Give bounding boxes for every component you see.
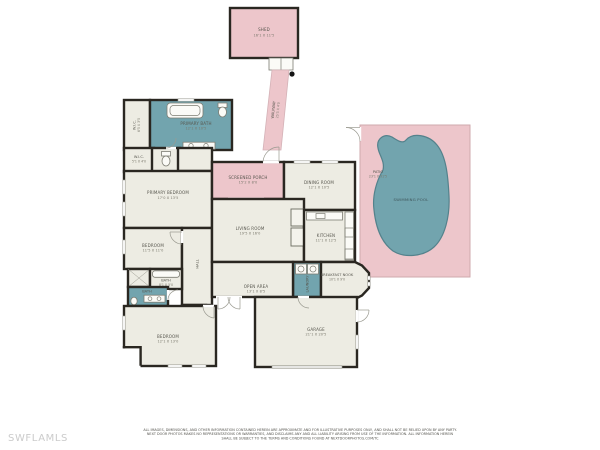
vanity-icon <box>144 295 165 302</box>
open-area-name-label: OPEN AREA <box>244 284 269 289</box>
breakfast-nook-dims-label: 10'1 X 9'0 <box>329 278 345 282</box>
bedroom-2-name-label: BEDROOM <box>142 243 164 248</box>
floor-plan-page: SHED 16'1 X 11'5 WALKWAY 25'5 X 4'0 PATI… <box>0 0 600 450</box>
closet <box>291 228 304 246</box>
room-primary-bath: PRIMARY BATH 12'1 X 10'5 <box>150 100 232 150</box>
primary-bedroom-dims-label: 17'0 X 13'5 <box>157 196 178 200</box>
room-wic-small: W.I.C. 5'1 X 4'0 <box>124 148 154 172</box>
pool-deck: PATIO 23'1 X 31'5 SWIMMING POOL <box>346 125 470 277</box>
open-area-dims-label: 13'1 X 8'5 <box>247 290 266 294</box>
door-gap <box>356 310 359 322</box>
primary-bath-name-label: PRIMARY BATH <box>180 121 211 126</box>
bedroom-2-dims-label: 11'5 X 11'0 <box>142 249 163 253</box>
washer-icon <box>296 264 307 274</box>
room-bath-3: BATH <box>128 287 168 306</box>
wic-small-name-label: W.I.C. <box>134 155 144 159</box>
dining-name-label: DINING ROOM <box>304 180 334 185</box>
room-water-closet <box>152 148 180 172</box>
shed-dims-label: 16'1 X 11'5 <box>253 34 274 38</box>
walkway: WALKWAY 25'5 X 4'0 <box>263 70 289 150</box>
bedroom-3-notch <box>121 348 141 368</box>
window <box>123 202 125 216</box>
swimming-pool-shape <box>374 135 450 255</box>
room-linen-closet <box>128 269 150 287</box>
window <box>168 365 182 367</box>
hall-top <box>178 148 212 171</box>
room-hall: HALL <box>182 228 212 305</box>
window <box>322 161 338 163</box>
primary-bath-dims-label: 12'1 X 10'5 <box>185 127 206 131</box>
bath-3-name-label: BATH <box>142 290 152 294</box>
window <box>123 180 125 194</box>
window <box>294 161 310 163</box>
window <box>192 365 206 367</box>
floor-plan-drawing: SHED 16'1 X 11'5 WALKWAY 25'5 X 4'0 PATI… <box>0 0 600 450</box>
laundry-name-label: LAUNDRY <box>305 275 309 293</box>
door-gap <box>298 296 309 299</box>
wic-small-dims-label: 5'1 X 4'0 <box>132 160 146 164</box>
wic-primary-dims-label: 6'5 X 3'5 <box>137 118 141 132</box>
disclaimer-line-3: SHALL BE SUBJECT TO THE TERMS AND CONDIT… <box>221 436 379 440</box>
room-wic-primary: W.I.C. 6'5 X 3'5 <box>124 100 150 150</box>
toilet-bowl-icon <box>162 156 170 166</box>
dining-dims-label: 12'1 X 10'5 <box>308 186 329 190</box>
bedroom-3-name-label: BEDROOM <box>157 334 179 339</box>
patio-dims-label: 23'1 X 31'5 <box>369 175 387 179</box>
wic-primary-label: W.I.C. 6'5 X 3'5 <box>133 118 141 132</box>
kitchen-counter <box>345 212 354 260</box>
bedroom-3-dims-label: 12'1 X 13'0 <box>157 340 178 344</box>
shed: SHED 16'1 X 11'5 <box>230 8 298 77</box>
room-breakfast-nook: BREAKFAST NOOK 10'1 X 9'0 <box>321 262 370 299</box>
bay-window <box>368 276 371 280</box>
window <box>123 240 125 254</box>
window <box>356 335 358 349</box>
room-laundry: LAUNDRY <box>293 262 321 297</box>
room-kitchen: KITCHEN 11'1 X 12'5 <box>304 210 355 262</box>
door-arc-icon <box>357 310 369 322</box>
entry-door-gap <box>216 296 242 299</box>
toilet-tank-icon <box>162 152 171 157</box>
door-arc-icon <box>168 290 178 300</box>
living-dims-label: 19'5 X 16'0 <box>239 232 260 236</box>
garage-name-label: GARAGE <box>307 327 325 332</box>
door-gap <box>203 305 214 308</box>
garage-dims-label: 21'1 X 20'5 <box>305 333 326 337</box>
primary-bedroom-name-label: PRIMARY BEDROOM <box>147 190 189 195</box>
patio-name-label: PATIO <box>373 170 383 174</box>
room-living: LIVING ROOM 19'5 X 16'0 <box>212 199 304 262</box>
closet <box>291 209 304 226</box>
marker-dot <box>289 71 294 76</box>
room-bedroom-2: BEDROOM 11'5 X 11'0 <box>124 228 182 269</box>
toilet-bowl-icon <box>219 107 227 117</box>
dryer-icon <box>308 264 319 274</box>
room-primary-bedroom: PRIMARY BEDROOM 17'0 X 13'5 <box>124 171 212 228</box>
room-bedroom-3: BEDROOM 12'1 X 13'0 <box>121 306 216 368</box>
hall-name-label: HALL <box>195 259 199 268</box>
window <box>123 316 125 330</box>
disclaimer: ALL IMAGES, DIMENSIONS, AND OTHER INFORM… <box>143 428 457 440</box>
door-gap <box>181 231 184 243</box>
room-screened-porch: SCREENED PORCH 15'2 X 8'0 <box>212 162 284 200</box>
screened-porch-name-label: SCREENED PORCH <box>228 175 267 180</box>
screen-door-arc-icon <box>346 128 360 142</box>
pool-name-label: SWIMMING POOL <box>394 197 430 202</box>
shed-name-label: SHED <box>258 27 270 32</box>
mls-watermark: SWFLAMLS <box>8 433 68 444</box>
door-gap <box>263 161 279 164</box>
breakfast-nook-name-label: BREAKFAST NOOK <box>321 273 354 277</box>
bathtub-icon <box>153 271 180 278</box>
screened-porch-dims-label: 15'2 X 8'0 <box>239 181 258 185</box>
kitchen-dims-label: 11'1 X 12'5 <box>315 239 336 243</box>
window <box>178 99 194 101</box>
kitchen-name-label: KITCHEN <box>317 233 335 238</box>
toilet-bowl-icon <box>131 297 137 305</box>
room-open-area: OPEN AREA 13'1 X 8'5 <box>212 262 293 297</box>
bay-window <box>368 282 371 286</box>
living-name-label: LIVING ROOM <box>236 226 265 231</box>
